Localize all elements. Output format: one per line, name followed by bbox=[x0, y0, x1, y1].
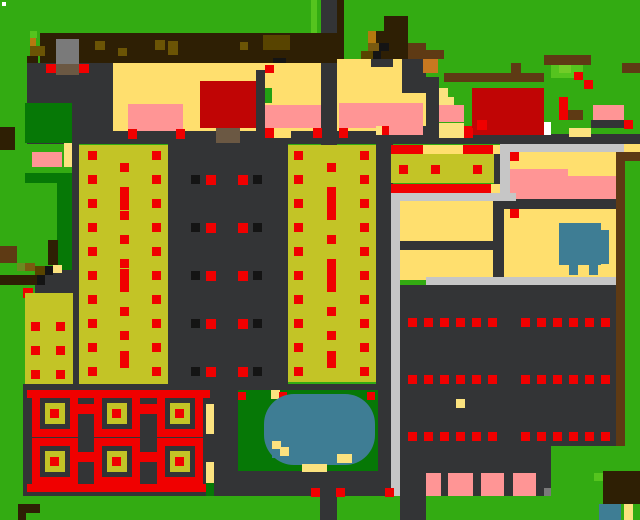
ranch-bit bbox=[569, 128, 591, 137]
red-dot bbox=[385, 488, 394, 497]
crop-dots-left bbox=[88, 295, 97, 304]
fence-right bbox=[622, 63, 640, 73]
dark-field-black-dot bbox=[253, 223, 262, 232]
warehouse-dot bbox=[424, 432, 433, 441]
crop-dots-mid-mid bbox=[327, 163, 336, 172]
road-vertical-top bbox=[321, 0, 337, 146]
crop-dots-left-mid bbox=[120, 283, 129, 292]
dark-field bbox=[168, 143, 288, 392]
room-floor bbox=[568, 169, 616, 176]
warehouse-dot bbox=[569, 432, 578, 441]
crop-dots-left-mid bbox=[120, 187, 129, 196]
dirt-speck bbox=[95, 41, 105, 50]
edge-bit bbox=[382, 126, 389, 135]
crop-dots-small bbox=[31, 370, 40, 379]
warehouse-dot bbox=[424, 318, 433, 327]
doormat bbox=[216, 128, 240, 143]
warehouse-dot bbox=[601, 318, 610, 327]
crop-dots-left-mid bbox=[120, 307, 129, 316]
light-grass-stripe bbox=[311, 0, 317, 33]
crop-dots-mid bbox=[360, 319, 369, 328]
water-bit bbox=[272, 449, 280, 458]
red-dot bbox=[128, 129, 137, 139]
crop-dots-mid bbox=[294, 175, 303, 184]
dark-field-black-dot bbox=[253, 175, 262, 184]
red-dot bbox=[336, 488, 345, 497]
yellow-bar bbox=[423, 145, 463, 154]
garden-maze-cell-dot bbox=[50, 457, 59, 466]
garden-maze-cell-dot bbox=[112, 409, 121, 418]
tree-canopy bbox=[381, 51, 408, 59]
crop-dots-small bbox=[56, 370, 65, 379]
shipping-bin-front bbox=[56, 64, 79, 75]
maze-edge-green bbox=[206, 483, 214, 496]
crop-dots-left bbox=[152, 223, 161, 232]
red-bar bbox=[463, 145, 493, 154]
log-end bbox=[53, 265, 62, 273]
log-shadow bbox=[37, 275, 45, 285]
crop-dots-left bbox=[152, 199, 161, 208]
log bbox=[0, 275, 37, 285]
maze-tab bbox=[77, 404, 94, 414]
tree-branch bbox=[368, 43, 379, 51]
crop-dots-left bbox=[88, 319, 97, 328]
totem-pole bbox=[559, 97, 568, 120]
dark-field-black-dot bbox=[191, 319, 200, 328]
crop-dots-left bbox=[88, 151, 97, 160]
ranch-bit bbox=[439, 123, 464, 138]
crop-dots-mid bbox=[360, 367, 369, 376]
tree-canopy bbox=[376, 31, 408, 43]
crop-dots-mid-mid bbox=[327, 355, 336, 364]
crop-dots-left bbox=[152, 343, 161, 352]
crop-dots-left bbox=[88, 367, 97, 376]
crop-dots-mid bbox=[360, 175, 369, 184]
crop-dots-left-mid bbox=[120, 355, 129, 364]
crop-dots-left bbox=[152, 247, 161, 256]
barn-door bbox=[544, 122, 551, 135]
dirt-speck bbox=[30, 46, 45, 56]
pink-rug bbox=[265, 105, 321, 128]
fence-segment bbox=[426, 50, 444, 59]
gray-path bbox=[426, 277, 616, 285]
tree-branch bbox=[368, 31, 376, 43]
crop-dots-mid-mid bbox=[327, 187, 336, 196]
red-dot bbox=[464, 128, 473, 138]
warehouse-dot bbox=[521, 375, 530, 384]
trough-shadow bbox=[591, 120, 624, 128]
crop-dots-left bbox=[152, 175, 161, 184]
trunk-strip bbox=[337, 0, 344, 66]
dark-field-red-dot bbox=[238, 223, 248, 233]
dark-field-red-dot bbox=[238, 319, 248, 329]
road-stub bbox=[400, 496, 426, 520]
pink-pallet bbox=[481, 473, 504, 496]
truck-cab bbox=[601, 230, 609, 264]
dark-field-red-dot bbox=[206, 223, 216, 233]
warehouse-dot bbox=[472, 375, 481, 384]
dirt-speck bbox=[27, 56, 38, 63]
dark-field-red-dot bbox=[206, 175, 216, 185]
crop-dots-left-mid bbox=[120, 235, 129, 244]
red-building bbox=[200, 81, 256, 128]
dark-field-black-dot bbox=[253, 271, 262, 280]
feed-trough bbox=[593, 105, 624, 120]
room-floor bbox=[510, 152, 616, 169]
truck-body bbox=[559, 223, 601, 265]
red-dot bbox=[311, 488, 320, 497]
maze-tab bbox=[140, 452, 157, 462]
warehouse-dot bbox=[553, 375, 562, 384]
garden-maze-cell-dot bbox=[112, 457, 121, 466]
log-shadow bbox=[45, 266, 53, 275]
maze-tab bbox=[140, 404, 157, 414]
border-strip bbox=[616, 152, 625, 446]
crop-dots-left bbox=[152, 319, 161, 328]
warehouse-dot bbox=[585, 375, 594, 384]
garden-maze-cell-dot bbox=[175, 457, 184, 466]
dark-field-red-dot bbox=[206, 367, 216, 377]
crop-dots-left-mid bbox=[120, 211, 129, 220]
crop-dots-mid bbox=[360, 271, 369, 280]
dark-field-black-dot bbox=[253, 319, 262, 328]
warehouse-dot bbox=[456, 432, 465, 441]
ranch-wall bbox=[426, 77, 439, 140]
crop-dots-mid bbox=[294, 319, 303, 328]
crop-dots-left bbox=[88, 271, 97, 280]
border-bit bbox=[624, 152, 640, 161]
red-dot bbox=[477, 120, 487, 130]
yellow-bar bbox=[493, 145, 500, 154]
red-dot bbox=[313, 128, 322, 138]
crop-dots-left bbox=[88, 175, 97, 184]
dirt-patch bbox=[263, 35, 290, 50]
warehouse-floor bbox=[393, 285, 617, 446]
warehouse-dot bbox=[488, 375, 497, 384]
red-dot bbox=[339, 128, 348, 138]
crop-dots-left-mid bbox=[120, 331, 129, 340]
warehouse-dot bbox=[537, 375, 546, 384]
interior-wall bbox=[400, 241, 496, 250]
truck-wheel bbox=[589, 265, 598, 275]
crop-dots-mid-mid bbox=[327, 259, 336, 268]
maze-tab bbox=[77, 452, 94, 462]
warehouse-dot bbox=[569, 318, 578, 327]
left-edge-stump bbox=[0, 127, 15, 150]
farm-map-viewport[interactable] bbox=[0, 0, 640, 520]
red-dot bbox=[624, 120, 633, 129]
crop-dots-mid bbox=[294, 223, 303, 232]
crop-dots-small bbox=[31, 346, 40, 355]
warehouse-dot bbox=[521, 432, 530, 441]
pink-rug bbox=[128, 104, 183, 131]
dark-field-black-dot bbox=[191, 175, 200, 184]
grass-speck bbox=[30, 31, 37, 38]
interior-wall bbox=[493, 201, 504, 280]
dirt-speck bbox=[30, 38, 36, 46]
dirt-speck bbox=[155, 40, 165, 50]
crop-dots-mid-mid bbox=[327, 283, 336, 292]
sand-bit bbox=[280, 447, 289, 456]
yellow-bar bbox=[491, 184, 500, 193]
sand-bit bbox=[302, 464, 327, 472]
red-dot bbox=[238, 392, 246, 400]
warehouse-dot bbox=[521, 318, 530, 327]
crop-dots-small bbox=[31, 322, 40, 331]
dark-field-red-dot bbox=[206, 271, 216, 281]
ranch-bit bbox=[439, 97, 454, 105]
warehouse-dot bbox=[440, 432, 449, 441]
tree-canopy bbox=[384, 16, 408, 31]
crop-dots-mid bbox=[294, 247, 303, 256]
crop-dots-mid bbox=[294, 271, 303, 280]
wall-horizontal bbox=[376, 134, 640, 144]
dark-field-red-dot bbox=[206, 319, 216, 329]
tree-block bbox=[57, 183, 72, 273]
crop-dots-left bbox=[152, 271, 161, 280]
warehouse-dot bbox=[408, 375, 417, 384]
crop-dots-mid bbox=[360, 151, 369, 160]
warehouse-dot bbox=[488, 318, 497, 327]
tree-shadow bbox=[373, 51, 381, 59]
log bbox=[25, 263, 35, 271]
warehouse-dot bbox=[569, 375, 578, 384]
dirt-speck bbox=[240, 42, 248, 50]
pink-pallet bbox=[513, 473, 536, 496]
tree-branch bbox=[361, 51, 373, 59]
speck-white bbox=[2, 2, 6, 6]
crop-dots-left bbox=[88, 247, 97, 256]
red-dot bbox=[510, 152, 519, 161]
red-bar bbox=[391, 184, 491, 193]
threshold bbox=[273, 128, 291, 138]
warehouse-dot bbox=[456, 375, 465, 384]
crop-dots-mid bbox=[360, 343, 369, 352]
edge-bit bbox=[389, 126, 423, 135]
dirt-speck bbox=[118, 48, 127, 56]
warehouse-dot bbox=[424, 375, 433, 384]
crop-dots-left bbox=[88, 223, 97, 232]
crop-dots-mid bbox=[360, 295, 369, 304]
log bbox=[35, 266, 45, 275]
red-dot bbox=[473, 165, 482, 174]
tree-block bbox=[25, 103, 72, 143]
gray-path-vertical bbox=[391, 201, 400, 497]
stump-block bbox=[603, 471, 640, 504]
speck bbox=[456, 399, 465, 408]
warehouse-dot bbox=[472, 432, 481, 441]
crop-dots-small bbox=[56, 346, 65, 355]
crop-dots-left-mid bbox=[120, 163, 129, 172]
water-corner bbox=[599, 504, 621, 520]
dark-field-red-dot bbox=[238, 367, 248, 377]
dark-field-red-dot bbox=[238, 271, 248, 281]
warehouse-dot bbox=[601, 432, 610, 441]
maze-edge-path bbox=[206, 404, 214, 434]
pink-room bbox=[568, 176, 616, 199]
crop-dots-mid-mid bbox=[327, 331, 336, 340]
road-vertical-bottom bbox=[320, 472, 337, 520]
crop-dots-mid-mid bbox=[327, 235, 336, 244]
gray-path bbox=[391, 193, 516, 201]
fence-long bbox=[444, 73, 544, 82]
red-dot bbox=[79, 64, 89, 73]
fence-pen bbox=[544, 55, 591, 65]
warehouse-dot bbox=[537, 432, 546, 441]
speck bbox=[544, 488, 551, 496]
path-bit bbox=[64, 143, 72, 167]
warehouse-dot bbox=[456, 318, 465, 327]
fence-segment bbox=[408, 43, 426, 59]
crop-dots-left bbox=[88, 343, 97, 352]
dark-field-black-dot bbox=[253, 367, 262, 376]
garden-maze-cell-dot bbox=[50, 409, 59, 418]
fence-post bbox=[511, 63, 521, 73]
crop-dots-mid bbox=[294, 367, 303, 376]
pink-room bbox=[510, 169, 568, 199]
sand-bit bbox=[337, 454, 352, 463]
shipping-bin bbox=[56, 39, 79, 65]
interior-wall bbox=[500, 199, 616, 209]
crop-dots-left bbox=[152, 367, 161, 376]
warehouse-dot bbox=[472, 318, 481, 327]
crop-dots-mid bbox=[294, 295, 303, 304]
red-dot bbox=[46, 64, 56, 73]
garden-maze-cell-dot bbox=[175, 409, 184, 418]
pink-pallet bbox=[448, 473, 473, 496]
sand-corner bbox=[624, 504, 633, 520]
crop-dots-mid bbox=[294, 151, 303, 160]
tree-canopy bbox=[389, 43, 408, 51]
totem-base bbox=[568, 110, 583, 120]
pink-bed bbox=[32, 152, 62, 167]
corner-bit bbox=[624, 144, 640, 152]
tree-trunk bbox=[48, 240, 58, 265]
dark-field-black-dot bbox=[191, 223, 200, 232]
red-dot bbox=[574, 72, 583, 80]
red-dot bbox=[510, 209, 519, 218]
red-dot bbox=[176, 129, 185, 139]
crop-dots-mid bbox=[360, 199, 369, 208]
grass-speck bbox=[594, 473, 603, 481]
tree-block bbox=[25, 173, 72, 183]
crop-dots-left bbox=[152, 151, 161, 160]
log-moss bbox=[17, 263, 25, 271]
pink-pallet bbox=[426, 473, 441, 496]
crop-dots-mid bbox=[360, 223, 369, 232]
warehouse-dot bbox=[601, 375, 610, 384]
crop-dots-mid bbox=[360, 247, 369, 256]
crop-dots-mid-mid bbox=[327, 211, 336, 220]
crop-dots-mid-mid bbox=[327, 307, 336, 316]
warehouse-dot bbox=[553, 432, 562, 441]
dark-field-black-dot bbox=[191, 367, 200, 376]
warehouse-dot bbox=[537, 318, 546, 327]
red-dot bbox=[399, 165, 408, 174]
warehouse-dot bbox=[408, 318, 417, 327]
warehouse-dot bbox=[440, 318, 449, 327]
orange-crate bbox=[423, 59, 438, 73]
warehouse-dot bbox=[553, 318, 562, 327]
crop-dots-left-mid bbox=[120, 259, 129, 268]
dark-field-red-dot bbox=[238, 175, 248, 185]
pink-bed bbox=[439, 105, 464, 122]
crop-dots-mid bbox=[294, 199, 303, 208]
pink-rug bbox=[339, 103, 423, 128]
log bbox=[0, 246, 17, 263]
warehouse-dot bbox=[408, 432, 417, 441]
crop-dots-mid bbox=[294, 343, 303, 352]
red-dot bbox=[367, 392, 375, 400]
maze-bar-bottom bbox=[27, 484, 210, 492]
crop-dots-small bbox=[56, 322, 65, 331]
dirt-speck bbox=[168, 41, 178, 55]
truck-wheel bbox=[569, 265, 578, 275]
wall-notch bbox=[371, 59, 393, 67]
dark-field-black-dot bbox=[191, 271, 200, 280]
red-dot bbox=[265, 65, 274, 73]
green-door bbox=[265, 88, 272, 103]
path-strip bbox=[72, 143, 79, 384]
crop-dots-left bbox=[152, 295, 161, 304]
warehouse-dot bbox=[488, 432, 497, 441]
warehouse-dot bbox=[585, 318, 594, 327]
red-bar bbox=[391, 145, 423, 154]
warehouse-dot bbox=[440, 375, 449, 384]
room-floor bbox=[400, 250, 493, 280]
bottom-log bbox=[18, 512, 26, 520]
red-dot bbox=[431, 165, 440, 174]
room-floor bbox=[400, 201, 493, 241]
tree-shadow bbox=[379, 43, 389, 51]
crop-dots-left bbox=[88, 199, 97, 208]
warehouse-dot bbox=[585, 432, 594, 441]
tilled-dirt-band bbox=[40, 33, 337, 63]
bush-light bbox=[559, 65, 571, 73]
gray-path bbox=[500, 144, 624, 152]
red-dot bbox=[584, 80, 593, 89]
red-dot bbox=[265, 128, 274, 138]
